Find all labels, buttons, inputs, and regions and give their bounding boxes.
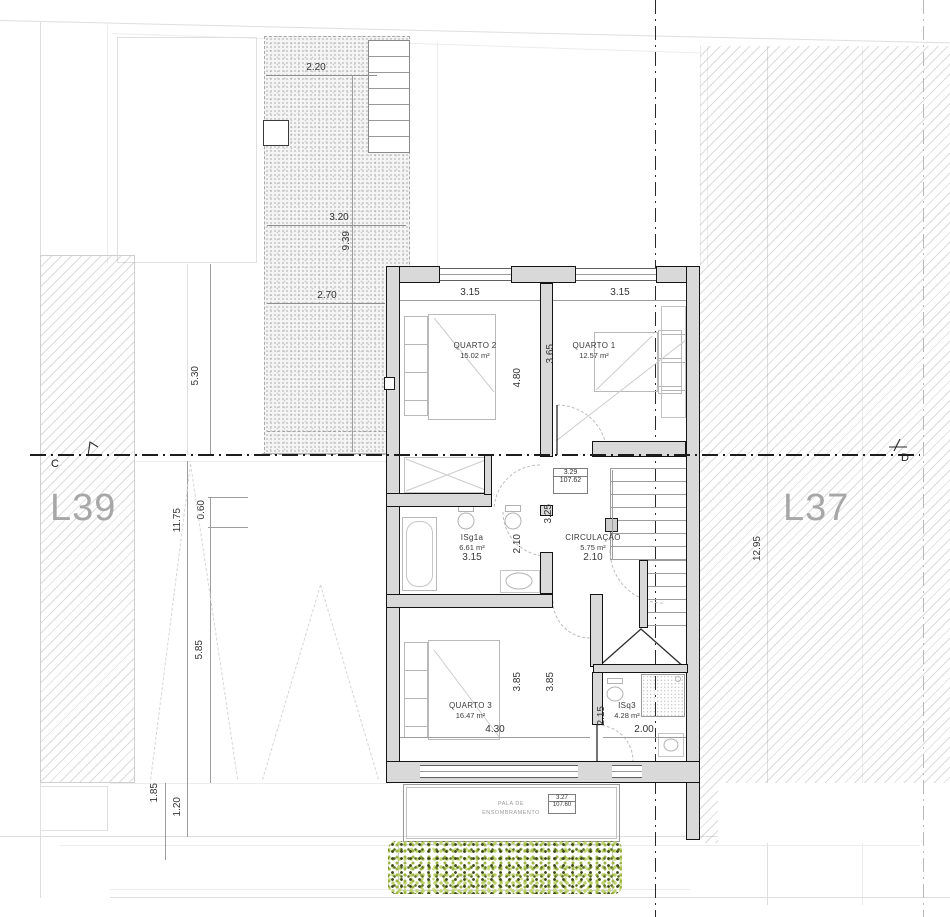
room-label-quarto1: QUARTO 1 12.57 m² (549, 341, 639, 360)
wall-closet-stub (484, 455, 492, 495)
hedge (388, 841, 622, 894)
dim-line-q2 (400, 300, 540, 301)
dim-quarto3-depth-right: 3.85 (545, 672, 556, 691)
wall-isq3-north (593, 664, 688, 673)
room-label-isg1a: ISg1a 6.61 m² 3.15 (437, 533, 507, 565)
wall-left (386, 266, 400, 783)
room-area: 6.61 m² (437, 543, 507, 552)
room-area: 12.57 m² (549, 351, 639, 360)
room-name: CIRCULAÇÃO (551, 533, 635, 543)
dim-quarto3-depth-left: 3.85 (512, 672, 523, 691)
window-isq3 (612, 765, 642, 778)
room-label-circulacao: CIRCULAÇÃO 5.75 m² 2.10 (551, 533, 635, 565)
room-label-quarto2: QUARTO 2 15.02 m² (430, 341, 520, 360)
dim-quarto2-depth: 4.80 (512, 368, 523, 387)
dim-circulacao-depth: 3.25 (543, 504, 554, 523)
room-name: ISg1a (437, 533, 507, 543)
window-quarto1 (576, 268, 656, 281)
room-area: 5.75 m² (551, 543, 635, 552)
level-altitude: 107.60 (549, 801, 575, 808)
room-name: QUARTO 2 (430, 341, 520, 351)
dim-isq3-width: 2.00 (594, 724, 694, 735)
room-name: QUARTO 3 (428, 701, 513, 711)
wall-quarto2-south (386, 493, 492, 507)
wall-right (686, 266, 700, 840)
dim-line-q3 (400, 737, 590, 738)
dim-circulacao-width: 2.10 (551, 552, 635, 565)
room-area: 15.02 m² (430, 351, 520, 360)
level-height: 3.29 (554, 469, 587, 476)
wall-socket-box (384, 377, 395, 390)
level-box-floor: 3.29 107.62 (553, 468, 588, 494)
room-name: QUARTO 1 (549, 341, 639, 351)
dim-isq3-depth: 2.15 (596, 706, 607, 725)
window-quarto3 (420, 765, 578, 778)
room-label-quarto3: QUARTO 3 16.47 m² (428, 701, 513, 720)
dim-line-q1 (553, 300, 686, 301)
window-quarto2 (440, 268, 511, 281)
level-box-canopy: 3.27 107.60 (548, 794, 576, 814)
wall-stair-circ (639, 560, 648, 628)
dim-line-isq3 (603, 737, 686, 738)
dim-quarto1-depth: 3.65 (545, 344, 556, 363)
dim-quarto3-width: 4.30 (445, 724, 545, 735)
wall-stair-quarto3 (590, 594, 603, 667)
level-altitude: 107.62 (554, 476, 587, 484)
wall-bath-quarto3 (386, 594, 553, 608)
section-line (30, 454, 920, 456)
wall-top-pier-b (511, 266, 576, 283)
dim-isg1a-depth: 2.10 (512, 534, 523, 553)
dim-quarto2-width: 3.15 (420, 287, 520, 298)
dim-quarto1-width: 3.15 (570, 287, 670, 298)
room-area: 16.47 m² (428, 711, 513, 720)
dim-isg1a-width: 3.15 (437, 552, 507, 565)
section-marker-d: D (901, 452, 909, 464)
floor-plan-canvas: L39 L37 2.20 3.20 9.39 2.70 5.30 11.75 0… (0, 0, 950, 917)
wall-quarto1-quarto2 (540, 283, 553, 457)
section-marker-c: C (51, 458, 59, 470)
